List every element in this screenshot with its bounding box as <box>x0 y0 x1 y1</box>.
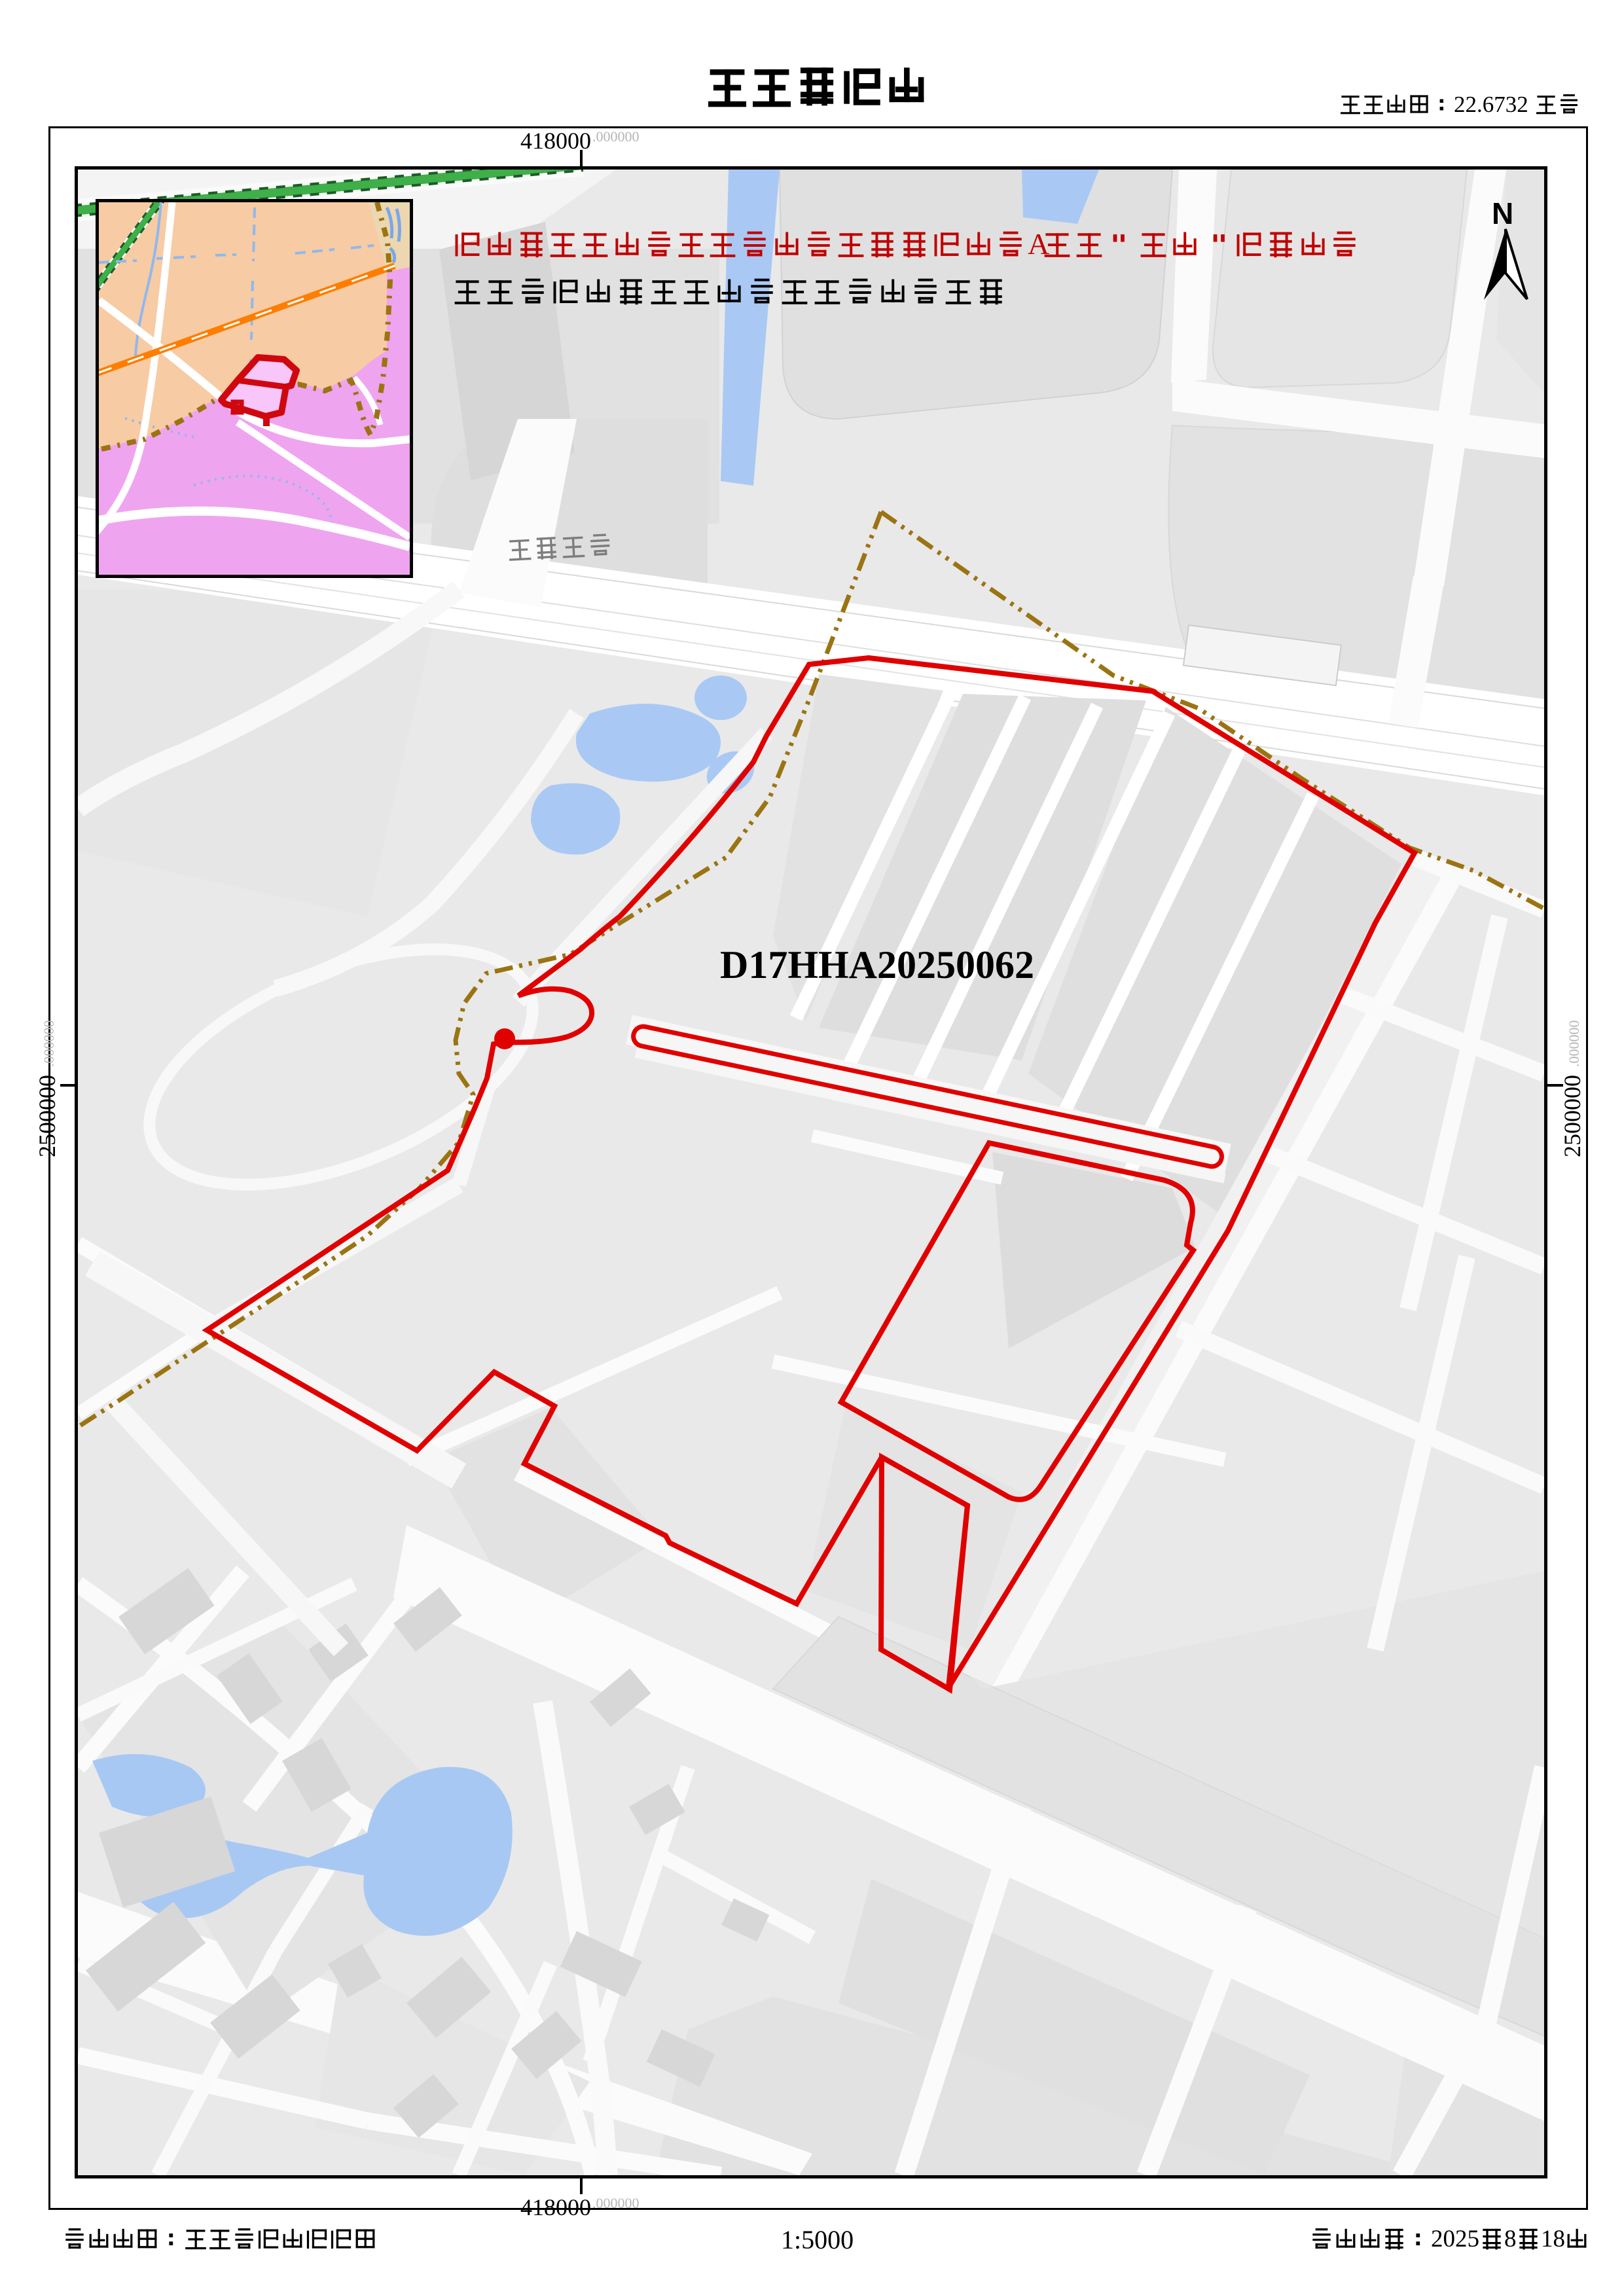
svg-text:.000000: .000000 <box>592 2195 640 2211</box>
svg-text:D17HHA20250062: D17HHA20250062 <box>720 943 1034 986</box>
svg-text:.000000: .000000 <box>1566 1021 1582 1068</box>
svg-text:8: 8 <box>1504 2226 1517 2252</box>
svg-text:1:5000: 1:5000 <box>781 2225 854 2254</box>
svg-text:2025: 2025 <box>1431 2226 1479 2252</box>
svg-text:18: 18 <box>1541 2226 1565 2252</box>
svg-text:.000000: .000000 <box>41 1021 57 1068</box>
svg-text:2500000: 2500000 <box>34 1075 60 1157</box>
svg-text:2500000: 2500000 <box>1559 1075 1585 1157</box>
